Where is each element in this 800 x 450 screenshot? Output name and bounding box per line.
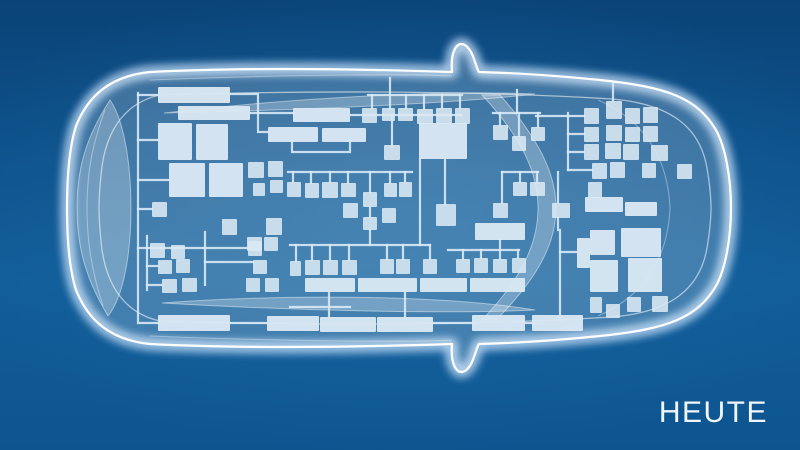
ecu-box — [552, 203, 570, 218]
ecu-box — [382, 108, 395, 121]
ecu-box — [436, 204, 456, 226]
ecu-box — [270, 180, 283, 193]
ecu-box — [651, 145, 668, 161]
ecu-box — [196, 124, 228, 160]
slide-background: HEUTE — [0, 0, 800, 450]
ecu-box — [455, 108, 470, 124]
ecu-box — [384, 145, 400, 160]
ecu-box — [267, 316, 319, 331]
ecu-box — [512, 258, 526, 273]
ecu-box — [293, 108, 350, 122]
ecu-box — [621, 228, 661, 257]
ecu-box — [590, 297, 602, 313]
ecu-box — [643, 107, 658, 123]
ecu-box — [158, 123, 192, 160]
ecu-box — [493, 125, 508, 140]
ecu-box — [158, 315, 230, 331]
ecu-box — [652, 296, 668, 312]
ecu-box — [677, 164, 692, 179]
ecu-box — [606, 304, 620, 318]
ecu-box — [265, 278, 279, 292]
ecu-box — [643, 126, 658, 142]
ecu-box — [470, 278, 525, 292]
ecu-box — [606, 125, 622, 141]
ecu-box — [248, 162, 264, 178]
ecu-box — [419, 123, 467, 159]
ecu-box — [577, 238, 590, 268]
ecu-box — [363, 192, 377, 207]
ecu-box — [423, 259, 437, 274]
ecu-box — [625, 202, 657, 216]
ecu-box — [512, 136, 526, 151]
ecu-box — [305, 183, 319, 198]
ecu-box — [584, 144, 599, 160]
timeline-label: HEUTE — [659, 398, 768, 428]
ecu-box — [584, 108, 599, 124]
ecu-box — [158, 260, 172, 274]
ecu-box — [268, 127, 318, 142]
ecu-box — [248, 241, 262, 256]
ecu-box — [358, 278, 417, 292]
ecu-box — [474, 258, 488, 273]
ecu-box — [150, 243, 165, 258]
ecu-box — [456, 259, 470, 273]
ecu-box — [436, 108, 452, 124]
ecu-box — [264, 237, 278, 251]
ecu-box — [417, 109, 433, 124]
ecu-box — [162, 279, 177, 293]
ecu-box — [182, 278, 197, 292]
ecu-box — [322, 182, 338, 198]
ecu-box — [253, 260, 267, 274]
ecu-box — [222, 219, 237, 235]
ecu-box — [253, 183, 265, 196]
ecu-box — [532, 315, 583, 331]
ecu-box — [341, 183, 356, 197]
ecu-box — [320, 317, 376, 332]
ecu-box — [377, 317, 433, 332]
ecu-box — [513, 182, 527, 196]
ecu-box — [610, 162, 625, 178]
car-ee-architecture-diagram — [0, 0, 800, 450]
ecu-box — [178, 106, 250, 120]
ecu-box — [475, 223, 525, 240]
ecu-box — [362, 108, 377, 123]
ecu-box — [420, 278, 467, 292]
ecu-box — [290, 261, 301, 276]
ecu-box — [584, 127, 599, 142]
ecu-box — [396, 259, 410, 274]
ecu-box — [158, 87, 230, 103]
ecu-box — [152, 202, 167, 217]
ecu-box — [342, 260, 357, 275]
ecu-box — [625, 108, 640, 124]
ecu-box — [399, 182, 412, 197]
ecu-box — [625, 127, 640, 142]
ecu-box — [384, 183, 397, 197]
ecu-box — [322, 128, 366, 142]
ecu-box — [627, 297, 641, 312]
ecu-box — [171, 245, 185, 259]
ecu-box — [305, 278, 355, 292]
ecu-box — [266, 218, 282, 235]
ecu-box — [530, 182, 545, 196]
ecu-box — [323, 260, 338, 275]
ecu-box — [531, 127, 545, 141]
ecu-box — [585, 197, 623, 212]
ecu-box — [605, 143, 621, 159]
ecu-box — [398, 108, 413, 121]
ecu-box — [590, 260, 618, 292]
ecu-box — [472, 315, 525, 331]
ecu-box — [590, 230, 615, 255]
ecu-box — [623, 144, 639, 160]
ecu-box — [287, 182, 301, 197]
ecu-box — [592, 163, 607, 179]
ecu-box — [588, 182, 602, 198]
ecu-box — [268, 161, 283, 177]
ecu-box — [305, 260, 320, 275]
ecu-box — [628, 258, 662, 292]
ecu-box — [380, 259, 394, 274]
ecu-box — [606, 101, 622, 119]
ecu-box — [363, 217, 377, 230]
ecu-box — [169, 163, 205, 197]
ecu-box — [176, 259, 190, 273]
ecu-box — [642, 163, 656, 178]
ecu-box — [343, 203, 358, 218]
ecu-box — [493, 203, 508, 218]
ecu-box — [493, 259, 507, 273]
ecu-box — [382, 208, 396, 223]
ecu-box — [246, 278, 260, 292]
ecu-box — [209, 163, 243, 197]
